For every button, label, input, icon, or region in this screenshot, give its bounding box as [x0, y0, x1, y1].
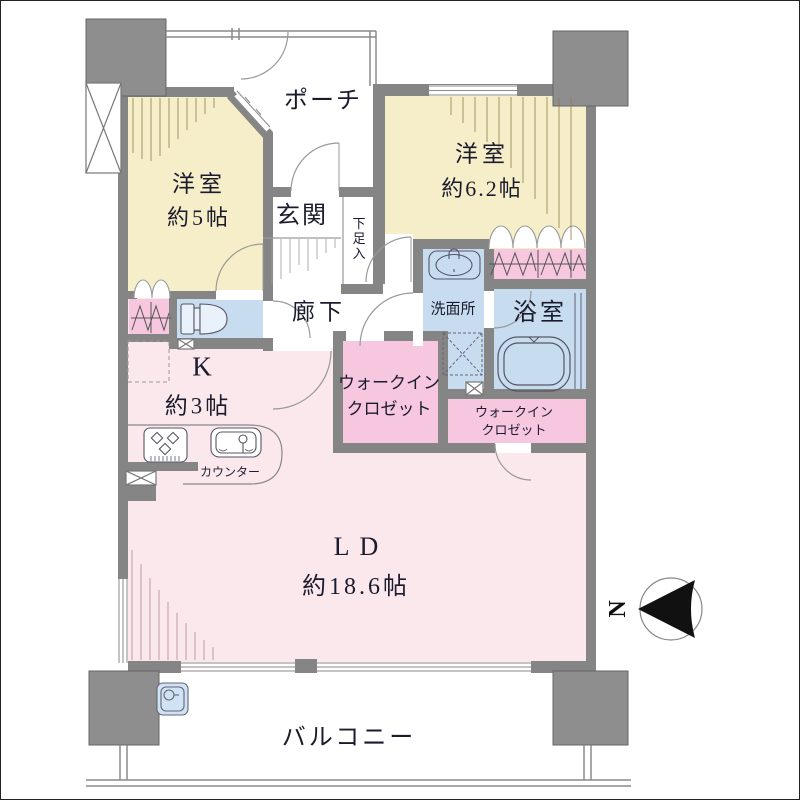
- balcony-label: バルコニー: [282, 726, 417, 750]
- wic2-label-line2: クロゼット: [481, 424, 546, 437]
- door-entrance: [291, 143, 339, 191]
- stove-icon: [144, 428, 187, 462]
- window-ld-left: [118, 579, 128, 663]
- duct-box-kitchen-icon: [126, 471, 156, 485]
- entrance-label: 玄関: [276, 204, 328, 228]
- window-ld-bottom-1: [181, 662, 295, 672]
- wic1-label-line2: クロゼット: [347, 401, 432, 418]
- column-top-right: [553, 31, 628, 106]
- floorplan-image: N 洋室 約5帖 ポーチ 洋室 約6.2帖 玄関 下足入 廊下 洗面所 浴室 ウ…: [0, 0, 800, 800]
- compass-label: N: [605, 600, 631, 618]
- bedroom5-size: 約5帖: [167, 207, 231, 229]
- shoe-cabinet-label: 下足入: [352, 217, 365, 262]
- slop-sink-icon: [157, 683, 188, 715]
- living-dining-size: 約18.6帖: [302, 575, 410, 599]
- washroom-label: 洗面所: [430, 303, 475, 318]
- bedroom62-label: 洋室: [455, 143, 509, 166]
- kitchen-label: K: [192, 354, 212, 381]
- counter-label: カウンター: [200, 466, 260, 478]
- balcony-railing: [86, 745, 631, 786]
- door-alcove-floor: [383, 234, 413, 284]
- kitchen-sink-icon: [211, 428, 261, 457]
- wic2-label-line1: ウォークイン: [475, 406, 553, 419]
- pipe-shaft-icon: [86, 83, 121, 173]
- kitchen-size: 約3帖: [165, 395, 232, 418]
- bathroom-label: 浴室: [513, 301, 567, 325]
- duct-box-washroom-icon: [466, 382, 483, 395]
- compass-icon: N: [605, 578, 702, 640]
- window-ld-bottom-2: [317, 662, 441, 672]
- toilet-icon: [181, 304, 227, 334]
- bedroom5-floor: [128, 97, 271, 296]
- duct-box-toilet-icon: [178, 339, 194, 349]
- living-dining-label: LD: [334, 534, 389, 560]
- wic1-floor: [343, 341, 438, 444]
- porch-boundary: [166, 28, 376, 86]
- column-bottom-right: [553, 671, 628, 745]
- window-ld-bottom-3: [441, 662, 531, 672]
- window-bedroom62-top: [429, 85, 517, 96]
- door-porch-gate: [241, 32, 288, 79]
- porch-label: ポーチ: [284, 89, 362, 113]
- bedroom62-size: 約6.2帖: [441, 178, 523, 200]
- bedroom62-floor: [379, 96, 586, 249]
- bedroom5-label: 洋室: [172, 173, 226, 196]
- hallway-label: 廊下: [292, 301, 346, 324]
- column-bottom-left: [89, 671, 159, 745]
- wic1-label-line1: ウォークイン: [338, 375, 440, 392]
